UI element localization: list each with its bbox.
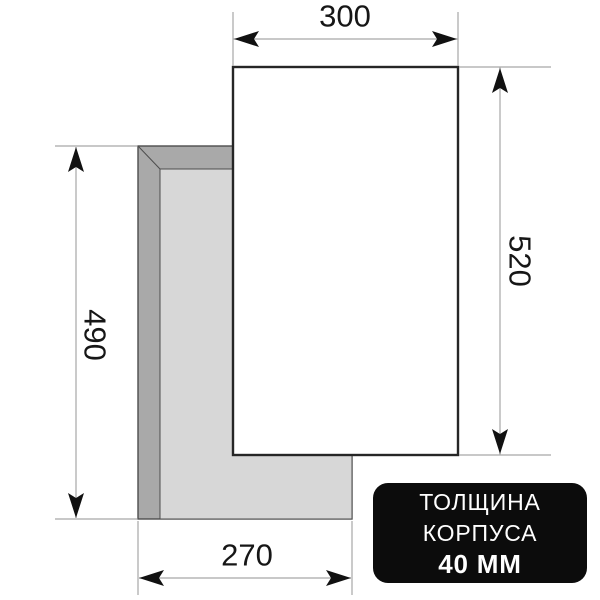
badge-line-3: 40 ММ: [438, 549, 521, 580]
label-panel-height: 520: [505, 235, 536, 287]
thickness-badge: ТОЛЩИНА КОРПУСА 40 ММ: [373, 483, 587, 583]
label-body-height: 490: [80, 309, 111, 361]
label-panel-width: 300: [319, 1, 371, 32]
dimension-diagram: 300 520 490 270 ТОЛЩИНА КОРПУСА 40 ММ: [0, 0, 600, 600]
label-body-width: 270: [221, 540, 273, 571]
badge-line-2: КОРПУСА: [423, 518, 538, 549]
badge-line-1: ТОЛЩИНА: [419, 487, 540, 518]
front-panel: [233, 67, 458, 455]
